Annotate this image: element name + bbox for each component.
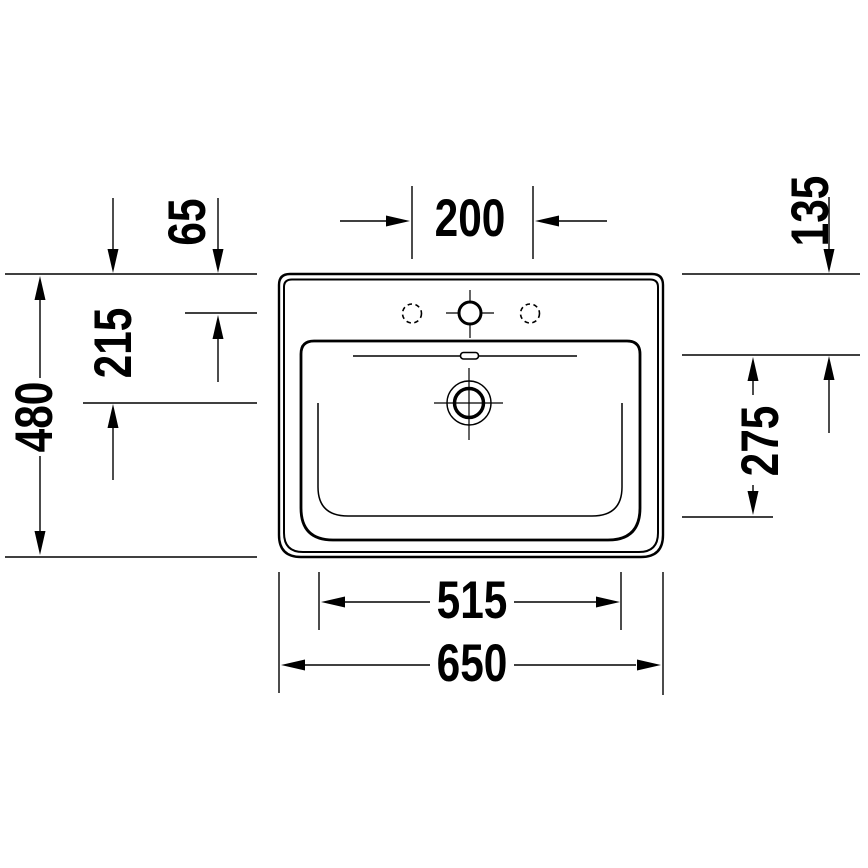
dimension-overall-width: 650 xyxy=(281,635,661,694)
dimension-275-label: 275 xyxy=(732,406,791,477)
optional-hole-right-circle xyxy=(521,304,540,323)
arrowhead-left-icon xyxy=(281,660,305,671)
basin-floor-contour xyxy=(318,403,622,516)
arrowhead-down-icon xyxy=(748,491,759,515)
dimension-200-label: 200 xyxy=(435,190,506,249)
basin-edge xyxy=(301,341,640,540)
arrowhead-down-icon xyxy=(35,531,46,555)
optional-hole-left-circle xyxy=(403,304,422,323)
basin-floor-line xyxy=(318,403,622,516)
dimension-basin-floor-depth: 275 xyxy=(732,357,791,515)
arrowhead-right-icon xyxy=(596,597,620,608)
basin-inner-outline xyxy=(301,341,640,540)
arrowhead-left-icon xyxy=(535,216,559,227)
overflow xyxy=(353,353,577,360)
tap-hole-optional-left xyxy=(403,304,422,323)
dimension-tap-centerline-offset: 65 xyxy=(159,198,224,382)
arrowhead-up-icon xyxy=(213,315,224,339)
dimension-135-label: 135 xyxy=(782,176,841,247)
dimension-drain-offset: 215 xyxy=(85,198,144,480)
dimension-215-label: 215 xyxy=(85,308,144,379)
tap-hole-optional-right xyxy=(521,304,540,323)
extension-lines-right xyxy=(682,274,860,517)
dimension-650-label: 650 xyxy=(437,635,508,694)
dimension-basin-floor-width: 515 xyxy=(321,572,620,631)
tap-hole xyxy=(446,290,494,338)
arrowhead-right-icon xyxy=(386,216,410,227)
dimension-overall-depth: 480 xyxy=(6,276,65,555)
tap-hole-circle xyxy=(459,302,481,324)
arrowhead-down-icon xyxy=(108,249,119,273)
arrowhead-down-icon xyxy=(824,249,835,273)
arrowhead-up-icon xyxy=(824,356,835,380)
dimension-65-label: 65 xyxy=(159,198,218,245)
arrowhead-up-icon xyxy=(35,276,46,300)
arrowhead-up-icon xyxy=(748,357,759,381)
dimension-basin-rim-offset: 135 xyxy=(782,176,841,433)
arrowhead-up-icon xyxy=(108,404,119,428)
arrowhead-left-icon xyxy=(321,597,345,608)
arrowhead-down-icon xyxy=(213,249,224,273)
overflow-slot xyxy=(461,353,479,360)
dimension-480-label: 480 xyxy=(6,382,65,453)
washbasin-dimension-drawing: 200 65 215 480 1 xyxy=(0,0,868,868)
drain xyxy=(434,368,503,440)
dimension-515-label: 515 xyxy=(437,572,508,631)
arrowhead-right-icon xyxy=(637,660,661,671)
dimension-tap-hole-spacing: 200 xyxy=(340,186,607,259)
technical-drawing-page: 200 65 215 480 1 xyxy=(0,0,868,868)
